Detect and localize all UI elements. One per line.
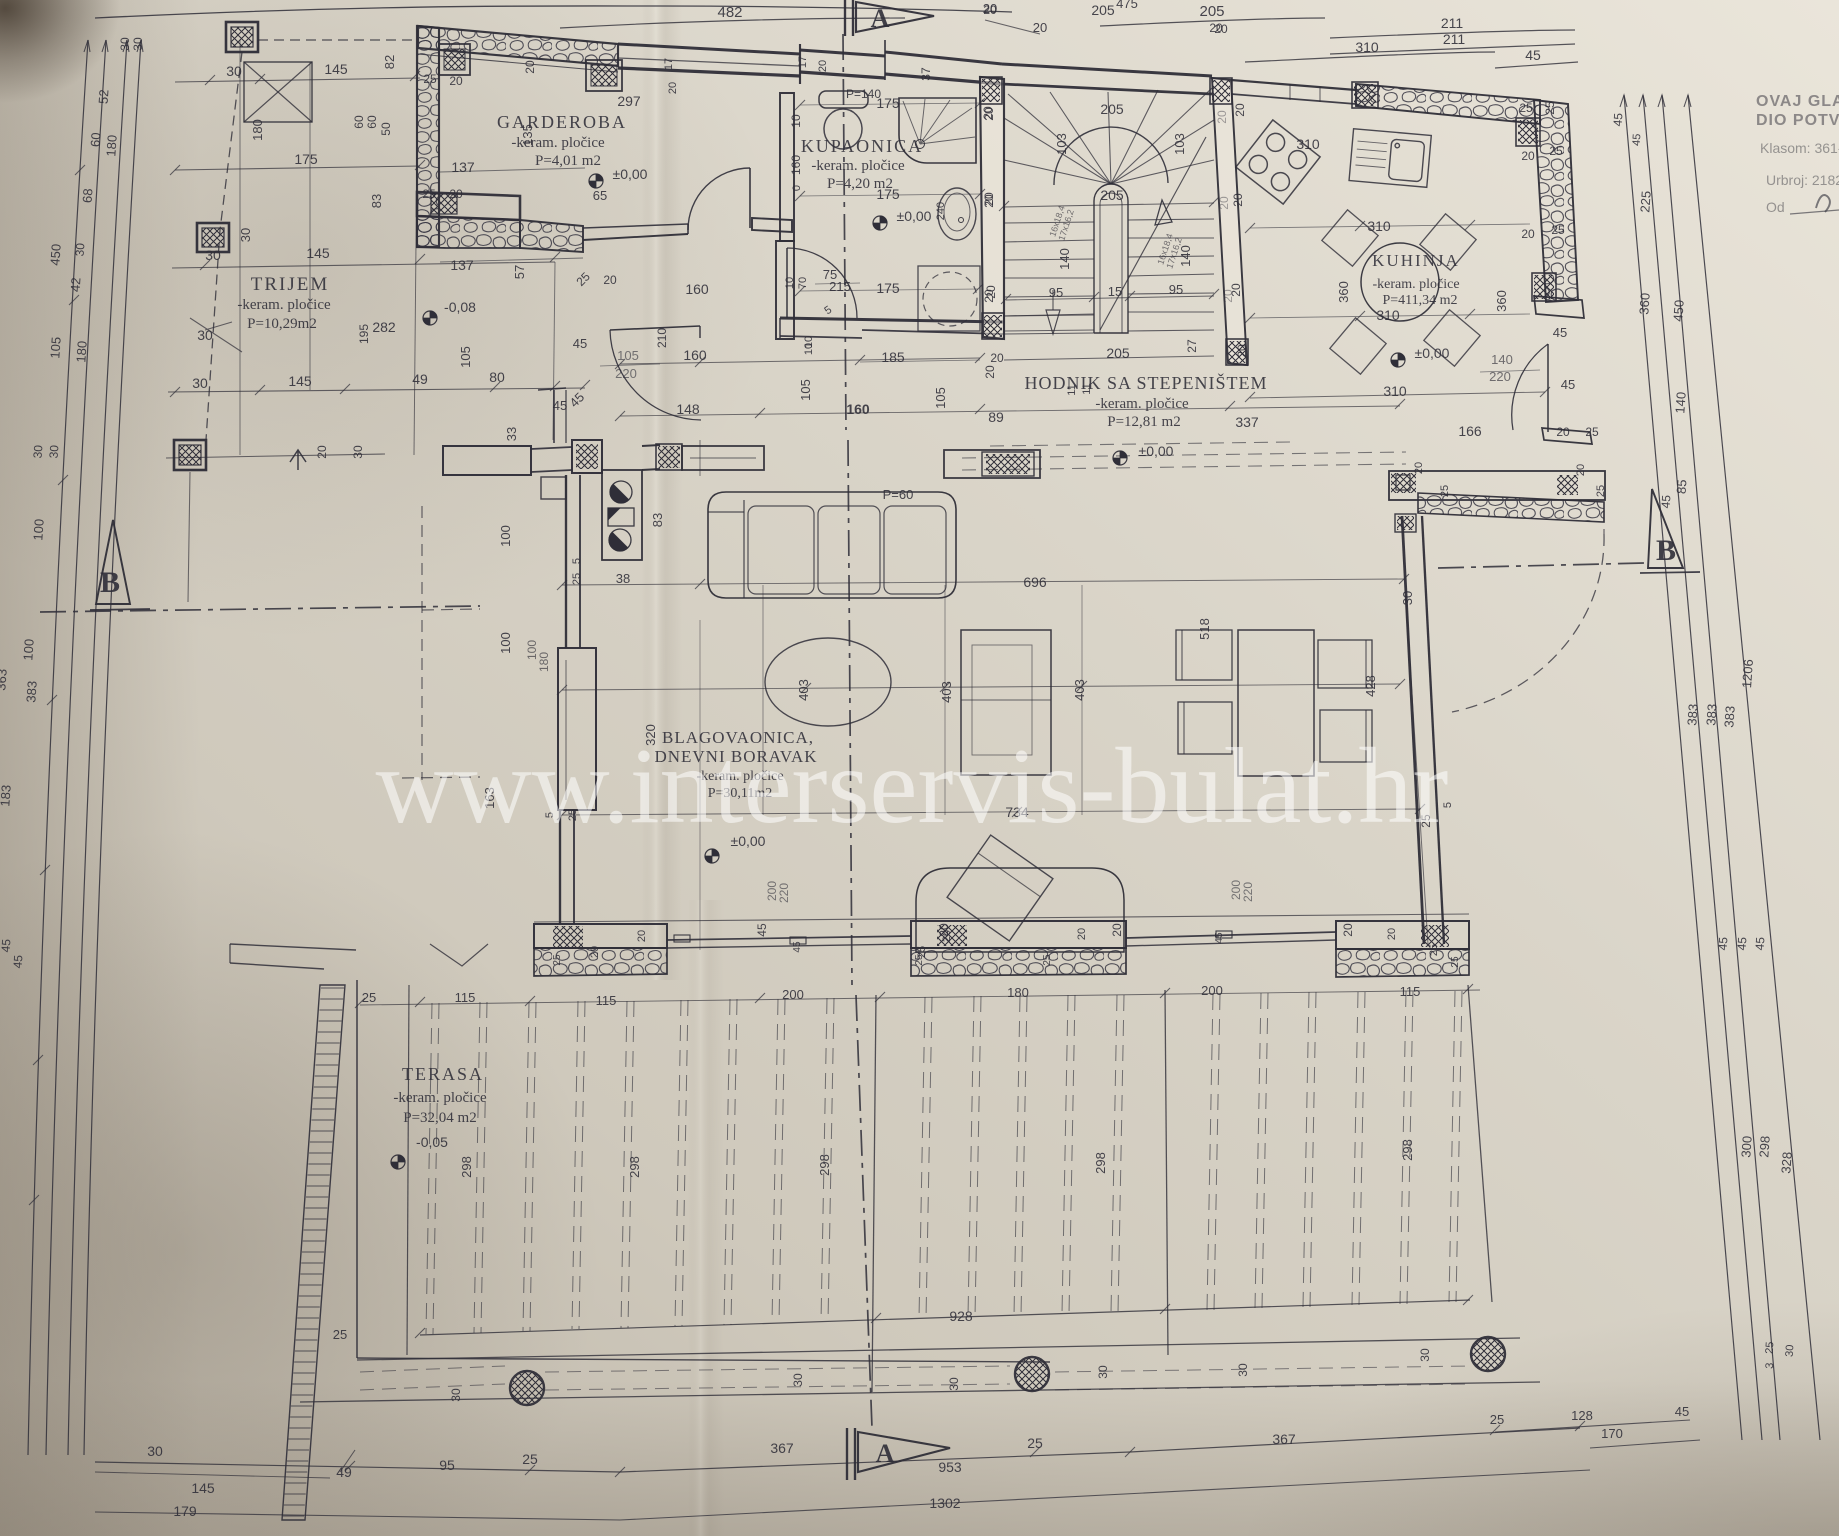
svg-text:115: 115 — [596, 993, 617, 1008]
svg-text:298: 298 — [1756, 1135, 1772, 1158]
svg-text:80: 80 — [489, 369, 505, 385]
svg-text:20: 20 — [449, 74, 463, 88]
svg-text:160: 160 — [846, 401, 870, 417]
svg-text:20: 20 — [982, 107, 996, 121]
svg-text:328: 328 — [1778, 1151, 1794, 1174]
svg-text:25: 25 — [422, 187, 436, 201]
svg-text:27: 27 — [1185, 339, 1199, 353]
svg-text:20: 20 — [937, 923, 951, 937]
svg-text:475: 475 — [1116, 0, 1138, 11]
svg-text:3: 3 — [1764, 1362, 1776, 1369]
svg-text:175: 175 — [294, 151, 318, 167]
svg-text:30: 30 — [1784, 1344, 1797, 1357]
svg-text:60: 60 — [352, 115, 366, 129]
svg-text:360: 360 — [1636, 292, 1652, 315]
svg-text:25: 25 — [1490, 1412, 1504, 1427]
svg-text:25: 25 — [1027, 1435, 1043, 1451]
svg-text:25: 25 — [1764, 1341, 1777, 1354]
svg-text:83: 83 — [650, 513, 665, 527]
svg-text:928: 928 — [949, 1308, 973, 1324]
svg-text:953: 953 — [938, 1459, 962, 1475]
svg-text:220: 220 — [615, 366, 637, 381]
svg-text:30: 30 — [131, 37, 145, 51]
svg-text:30: 30 — [1400, 591, 1415, 605]
svg-text:30: 30 — [791, 1373, 805, 1387]
svg-text:±0,00: ±0,00 — [1139, 443, 1174, 459]
svg-text:20: 20 — [1233, 103, 1247, 117]
svg-text:P=12,81 m2: P=12,81 m2 — [1107, 414, 1180, 430]
svg-text:45: 45 — [1659, 494, 1674, 509]
svg-text:367: 367 — [770, 1440, 794, 1456]
svg-text:57: 57 — [512, 265, 527, 279]
svg-text:25: 25 — [1585, 425, 1599, 439]
svg-text:45: 45 — [1716, 936, 1731, 951]
svg-text:205: 205 — [1106, 345, 1130, 361]
svg-text:20: 20 — [982, 289, 996, 303]
svg-text:360: 360 — [1494, 290, 1509, 312]
svg-text:OVAJ GLAVN: OVAJ GLAVN — [1756, 93, 1839, 110]
svg-text:±0,00: ±0,00 — [613, 166, 648, 182]
svg-text:20: 20 — [1521, 227, 1535, 241]
svg-text:166: 166 — [1458, 423, 1482, 439]
svg-text:170: 170 — [1601, 1426, 1623, 1441]
svg-text:383: 383 — [1703, 703, 1719, 726]
svg-text:95: 95 — [1169, 282, 1183, 297]
svg-text:403: 403 — [939, 681, 954, 703]
svg-text:482: 482 — [717, 4, 742, 21]
svg-text:45: 45 — [1753, 936, 1768, 951]
svg-text:95: 95 — [439, 1457, 455, 1473]
svg-text:30: 30 — [449, 1388, 463, 1402]
svg-text:145: 145 — [288, 373, 312, 389]
svg-text:105: 105 — [933, 387, 948, 409]
svg-text:-keram. pločice: -keram. pločice — [1372, 277, 1459, 292]
svg-text:20: 20 — [449, 187, 463, 201]
svg-text:363: 363 — [0, 668, 10, 691]
svg-text:100: 100 — [30, 518, 46, 541]
svg-text:282: 282 — [372, 319, 396, 335]
svg-text:135: 135 — [520, 124, 535, 146]
svg-text:45: 45 — [1675, 1404, 1689, 1419]
svg-text:211: 211 — [1441, 15, 1464, 31]
svg-text:45: 45 — [792, 941, 803, 953]
svg-text:20: 20 — [983, 3, 997, 17]
svg-text:140: 140 — [1057, 248, 1072, 270]
svg-text:10: 10 — [784, 277, 796, 289]
svg-text:20: 20 — [1214, 22, 1228, 36]
svg-text:45: 45 — [1214, 932, 1225, 944]
svg-text:25: 25 — [552, 954, 563, 966]
svg-text:105: 105 — [47, 336, 63, 359]
svg-text:183: 183 — [0, 784, 14, 807]
svg-text:103: 103 — [1054, 133, 1069, 155]
svg-text:15: 15 — [1108, 284, 1122, 299]
svg-text:85: 85 — [1674, 479, 1690, 494]
svg-text:17: 17 — [797, 56, 809, 68]
svg-text:P=411,34 m2: P=411,34 m2 — [1382, 293, 1457, 308]
svg-text:45: 45 — [0, 938, 13, 953]
svg-text:180: 180 — [1007, 985, 1029, 1000]
svg-text:367: 367 — [1272, 1431, 1296, 1447]
svg-text:297: 297 — [617, 93, 641, 109]
svg-text:180: 180 — [250, 119, 265, 141]
svg-text:200: 200 — [1201, 983, 1223, 998]
svg-text:310: 310 — [1296, 136, 1320, 152]
svg-text:20: 20 — [1386, 928, 1398, 940]
svg-text:220: 220 — [1241, 882, 1255, 902]
svg-text:38: 38 — [616, 571, 630, 586]
svg-text:180: 180 — [103, 134, 119, 157]
svg-text:105: 105 — [617, 348, 639, 363]
svg-text:www.interservis-bulat.hr: www.interservis-bulat.hr — [376, 727, 1449, 846]
svg-text:298: 298 — [1093, 1152, 1108, 1174]
svg-text:30: 30 — [238, 228, 253, 242]
svg-text:±0,00: ±0,00 — [1415, 345, 1450, 361]
svg-text:68: 68 — [80, 188, 96, 203]
svg-text:45: 45 — [11, 954, 26, 969]
svg-text:383: 383 — [1684, 703, 1700, 726]
svg-text:5: 5 — [571, 558, 583, 564]
svg-text:310: 310 — [1383, 383, 1407, 399]
svg-text:30: 30 — [1096, 1365, 1110, 1379]
svg-text:30: 30 — [351, 445, 365, 459]
svg-text:205: 205 — [1100, 187, 1124, 203]
svg-text:20: 20 — [1235, 344, 1249, 358]
svg-text:30: 30 — [118, 37, 132, 51]
svg-text:20: 20 — [1413, 462, 1425, 474]
svg-text:175: 175 — [876, 186, 900, 202]
svg-text:337: 337 — [1235, 414, 1259, 430]
svg-text:42: 42 — [68, 277, 84, 292]
svg-text:180: 180 — [537, 652, 551, 672]
svg-text:45: 45 — [1553, 325, 1567, 340]
svg-text:P=60: P=60 — [883, 487, 914, 502]
svg-text:205: 205 — [1199, 3, 1224, 20]
svg-text:145: 145 — [324, 61, 348, 77]
svg-text:298: 298 — [627, 1156, 642, 1178]
svg-text:518: 518 — [1197, 618, 1212, 640]
svg-text:220: 220 — [777, 883, 791, 903]
svg-text:95: 95 — [1049, 285, 1063, 300]
svg-text:-keram. pločice: -keram. pločice — [237, 297, 331, 313]
svg-text:45: 45 — [553, 398, 567, 413]
svg-text:30: 30 — [1418, 1348, 1432, 1362]
svg-text:50: 50 — [379, 122, 393, 136]
svg-text:Urbroj: 2182: Urbroj: 2182 — [1766, 172, 1839, 188]
svg-text:185: 185 — [881, 349, 905, 365]
svg-text:-0,08: -0,08 — [444, 299, 476, 315]
svg-text:30: 30 — [197, 327, 213, 343]
svg-text:310: 310 — [1376, 307, 1400, 323]
svg-text:25: 25 — [1439, 485, 1451, 497]
svg-text:25: 25 — [1543, 101, 1557, 115]
svg-text:175: 175 — [876, 95, 900, 111]
svg-text:175: 175 — [876, 280, 900, 296]
svg-text:1206: 1206 — [1739, 659, 1756, 689]
svg-text:403: 403 — [1072, 679, 1087, 701]
svg-text:65: 65 — [593, 188, 607, 203]
svg-text:P=10,29m2: P=10,29m2 — [247, 316, 317, 332]
svg-text:25: 25 — [1428, 944, 1440, 956]
svg-text:20: 20 — [982, 194, 996, 208]
svg-text:20: 20 — [1033, 20, 1047, 35]
svg-text:25: 25 — [571, 573, 583, 585]
svg-text:105: 105 — [798, 379, 813, 401]
svg-text:20: 20 — [990, 351, 1004, 365]
svg-text:52: 52 — [96, 89, 112, 104]
svg-text:B: B — [1656, 534, 1676, 567]
svg-text:140: 140 — [1178, 245, 1193, 267]
svg-text:160: 160 — [683, 347, 707, 363]
svg-text:Klasom: 361-0: Klasom: 361-0 — [1760, 140, 1839, 156]
svg-text:49: 49 — [412, 371, 428, 387]
svg-text:30: 30 — [147, 1443, 163, 1459]
svg-text:45: 45 — [1631, 133, 1644, 146]
svg-text:450: 450 — [47, 243, 63, 266]
svg-text:25: 25 — [522, 1451, 538, 1467]
svg-text:11: 11 — [1081, 383, 1093, 394]
svg-text:A: A — [871, 4, 890, 33]
svg-text:30: 30 — [205, 247, 221, 263]
svg-text:1302: 1302 — [929, 1495, 960, 1511]
svg-text:195: 195 — [357, 324, 371, 344]
svg-text:20: 20 — [983, 365, 997, 379]
svg-text:210: 210 — [655, 328, 669, 348]
svg-text:TRIJEM: TRIJEM — [251, 274, 330, 295]
svg-text:25: 25 — [1551, 223, 1565, 237]
svg-text:DIO POTVRD: DIO POTVRD — [1756, 112, 1839, 129]
svg-text:20: 20 — [315, 445, 329, 459]
svg-text:45: 45 — [1611, 112, 1626, 127]
svg-text:360: 360 — [1336, 281, 1351, 303]
svg-text:20: 20 — [1229, 283, 1243, 297]
svg-text:128: 128 — [1571, 1408, 1593, 1423]
svg-text:KUPAONICA: KUPAONICA — [801, 136, 923, 156]
svg-text:B: B — [100, 566, 120, 599]
svg-text:A: A — [876, 1439, 895, 1468]
svg-text:300: 300 — [1738, 1135, 1754, 1158]
svg-text:240: 240 — [935, 202, 947, 220]
svg-text:-0,05: -0,05 — [416, 1134, 448, 1150]
svg-text:20: 20 — [1521, 149, 1535, 163]
svg-text:25: 25 — [333, 1327, 347, 1342]
svg-text:P=4,01 m2: P=4,01 m2 — [535, 153, 601, 169]
svg-text:TERASA: TERASA — [402, 1064, 484, 1084]
svg-text:30: 30 — [31, 444, 46, 459]
svg-text:298: 298 — [459, 1156, 474, 1178]
svg-text:140: 140 — [1491, 352, 1513, 367]
svg-text:383: 383 — [1721, 705, 1737, 728]
svg-text:83: 83 — [369, 194, 384, 208]
svg-text:GARDEROBA: GARDEROBA — [497, 112, 627, 132]
svg-text:17: 17 — [663, 58, 675, 70]
svg-text:25: 25 — [1450, 956, 1461, 968]
svg-text:205: 205 — [1091, 2, 1115, 18]
svg-text:P=32,04 m2: P=32,04 m2 — [403, 1110, 476, 1126]
svg-text:30: 30 — [47, 444, 62, 459]
svg-text:215: 215 — [829, 279, 851, 294]
svg-text:10: 10 — [803, 336, 815, 348]
svg-text:Od: Od — [1766, 199, 1785, 215]
svg-text:225: 225 — [1637, 190, 1653, 213]
svg-text:115: 115 — [455, 990, 476, 1005]
svg-text:25: 25 — [1042, 954, 1053, 966]
svg-text:137: 137 — [451, 159, 475, 175]
svg-text:137: 137 — [450, 257, 474, 273]
svg-text:310: 310 — [1355, 39, 1379, 55]
svg-text:20: 20 — [603, 273, 617, 287]
svg-text:45: 45 — [573, 336, 587, 351]
svg-text:25: 25 — [1549, 144, 1563, 158]
svg-text:20: 20 — [589, 946, 601, 958]
svg-text:298: 298 — [1400, 1139, 1415, 1161]
svg-text:145: 145 — [306, 245, 330, 261]
svg-text:-keram. pločice: -keram. pločice — [393, 1090, 487, 1106]
svg-text:82: 82 — [382, 55, 397, 69]
svg-text:160: 160 — [685, 281, 709, 297]
svg-text:179: 179 — [173, 1503, 197, 1519]
svg-text:60: 60 — [88, 132, 104, 147]
svg-text:20: 20 — [1231, 193, 1245, 207]
svg-text:100: 100 — [498, 525, 513, 547]
svg-text:25: 25 — [916, 946, 928, 958]
svg-text:0: 0 — [791, 185, 803, 191]
svg-text:45: 45 — [1525, 47, 1541, 63]
svg-text:20: 20 — [1556, 425, 1570, 439]
svg-text:45: 45 — [755, 923, 769, 937]
svg-text:KUHINJA: KUHINJA — [1372, 251, 1460, 270]
svg-text:45: 45 — [1735, 936, 1750, 951]
svg-text:20: 20 — [1341, 923, 1355, 937]
svg-text:30: 30 — [1236, 1363, 1250, 1377]
svg-text:105: 105 — [458, 346, 473, 368]
svg-text:160: 160 — [789, 155, 803, 175]
svg-text:383: 383 — [23, 680, 39, 703]
svg-text:20: 20 — [636, 930, 648, 942]
svg-text:145: 145 — [191, 1480, 215, 1496]
svg-text:HODNIK SA STEPENIŠTEM: HODNIK SA STEPENIŠTEM — [1024, 372, 1267, 393]
svg-text:140: 140 — [1672, 391, 1688, 414]
svg-text:20: 20 — [817, 60, 829, 72]
svg-text:211: 211 — [1443, 31, 1466, 47]
svg-text:-keram. pločice: -keram. pločice — [811, 158, 905, 174]
svg-text:205: 205 — [1100, 101, 1124, 117]
svg-text:30: 30 — [226, 63, 242, 79]
svg-text:450: 450 — [1670, 299, 1686, 322]
svg-text:30: 30 — [192, 375, 208, 391]
svg-text:20: 20 — [1575, 464, 1587, 476]
svg-text:428: 428 — [1363, 675, 1378, 697]
svg-text:33: 33 — [504, 427, 519, 441]
svg-text:180: 180 — [73, 340, 89, 363]
svg-text:30: 30 — [947, 1377, 961, 1391]
svg-text:20: 20 — [1076, 928, 1088, 940]
svg-text:100: 100 — [20, 638, 36, 661]
svg-text:25: 25 — [1519, 101, 1533, 115]
svg-text:298: 298 — [817, 1154, 832, 1176]
svg-text:20: 20 — [667, 82, 679, 94]
svg-text:60: 60 — [365, 115, 379, 129]
svg-text:100: 100 — [498, 632, 513, 654]
svg-text:37: 37 — [919, 67, 933, 81]
svg-text:20: 20 — [1110, 923, 1124, 937]
svg-text:30: 30 — [73, 242, 88, 257]
svg-text:±0,00: ±0,00 — [897, 208, 932, 224]
svg-text:25: 25 — [1595, 485, 1607, 497]
svg-text:25: 25 — [362, 990, 376, 1005]
svg-text:45: 45 — [1561, 377, 1575, 392]
svg-text:20: 20 — [523, 60, 537, 74]
svg-text:10: 10 — [789, 114, 803, 128]
svg-text:103: 103 — [1172, 133, 1187, 155]
svg-text:25: 25 — [423, 72, 437, 86]
